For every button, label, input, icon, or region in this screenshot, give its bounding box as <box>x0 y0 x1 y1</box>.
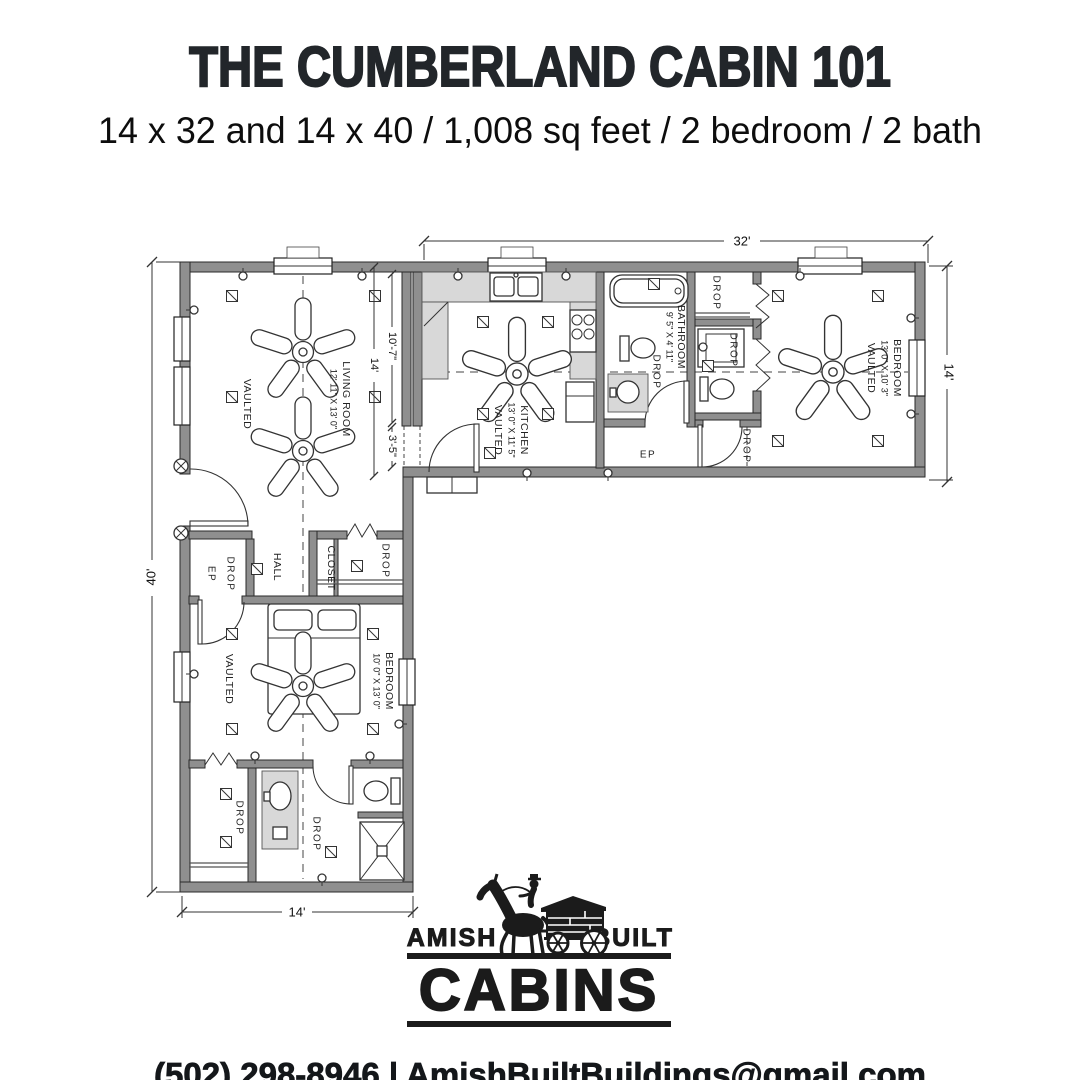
toilet-icon <box>620 336 629 361</box>
dim-wall-overall: 14' <box>368 358 380 372</box>
hall-label: HALL <box>271 553 283 581</box>
kitchen-dims: 13' 0" X 11' 5" <box>507 402 517 457</box>
drop-label: DROP <box>740 429 751 464</box>
logo-cabins: CABINS <box>419 958 659 1023</box>
bifold-door-icon <box>756 339 770 391</box>
drop-label: DROP <box>224 557 235 592</box>
living-room-dims: 12' 11" X 13' 0" <box>329 369 339 429</box>
toilet-icon <box>700 377 708 401</box>
bifold-door-icon <box>205 753 237 765</box>
bedroom-right-dims: 13' 0" X 10' 3" <box>880 340 890 396</box>
bifold-door-icon <box>347 524 377 537</box>
kitchen-name: KITCHEN <box>518 405 530 455</box>
logo-amish: AMISH <box>407 924 498 952</box>
hall-bedroom-door <box>198 600 202 644</box>
pillow-icon <box>274 610 312 630</box>
entry-door <box>190 521 248 526</box>
bedroom-lower-vaulted: VAULTED <box>223 654 235 704</box>
ep-label: EP <box>205 566 216 582</box>
bedroom-bath-door <box>349 766 353 804</box>
contact-info: (502) 298-8946 | AmishBuiltBuildings@gma… <box>0 1056 1080 1080</box>
bedroom-lower-dims: 10' 0" X 13' 0" <box>372 653 382 709</box>
dim-bottom: 14' <box>289 904 306 919</box>
living-room-name: LIVING ROOM <box>340 361 352 437</box>
dim-wall-lower: 3'-5" <box>386 435 398 457</box>
ep-label: EP <box>640 450 656 461</box>
living-room-vaulted: VAULTED <box>241 379 253 429</box>
pillow-icon <box>318 610 356 630</box>
bathroom-name: BATHROOM <box>675 305 687 369</box>
dim-wall-upper: 10'-7" <box>386 332 398 360</box>
lower-bathroom-fixtures <box>262 771 404 880</box>
closet-label: CLOSET <box>325 545 337 590</box>
drop-label: DROP <box>310 817 321 852</box>
toilet-icon <box>391 778 400 804</box>
logo-divider-bottom <box>407 1021 671 1027</box>
bathroom-dims: 9' 5" X 4' 11" <box>665 312 675 362</box>
bedroom-east-door <box>698 425 702 467</box>
bathroom-door <box>684 381 689 423</box>
dim-right: 14' <box>942 364 957 381</box>
meter-symbols <box>174 459 188 540</box>
fridge-icon <box>566 382 594 422</box>
bedroom-right-name: BEDROOM <box>891 339 903 397</box>
floor-plan-graphic: 32' 14' 40' 14' 10'-7" 14' 3'-5" LIVING … <box>0 34 1080 1080</box>
drop-label: DROP <box>379 544 390 579</box>
kitchen-exterior-door <box>474 424 479 472</box>
kitchen-vaulted: VAULTED <box>492 405 504 455</box>
bedroom-lower-name: BEDROOM <box>383 652 395 710</box>
logo-horse-cart-icon <box>480 874 607 956</box>
logo: AMISH BUILT <box>407 874 674 1027</box>
drop-label: DROP <box>710 276 721 311</box>
drop-label: DROP <box>233 801 244 836</box>
bedroom-right-vaulted: VAULTED <box>865 343 877 393</box>
dim-top: 32' <box>734 233 751 248</box>
drop-label: DROP <box>650 355 661 390</box>
drop-label: DROP <box>727 333 738 368</box>
dim-left: 40' <box>143 569 158 586</box>
